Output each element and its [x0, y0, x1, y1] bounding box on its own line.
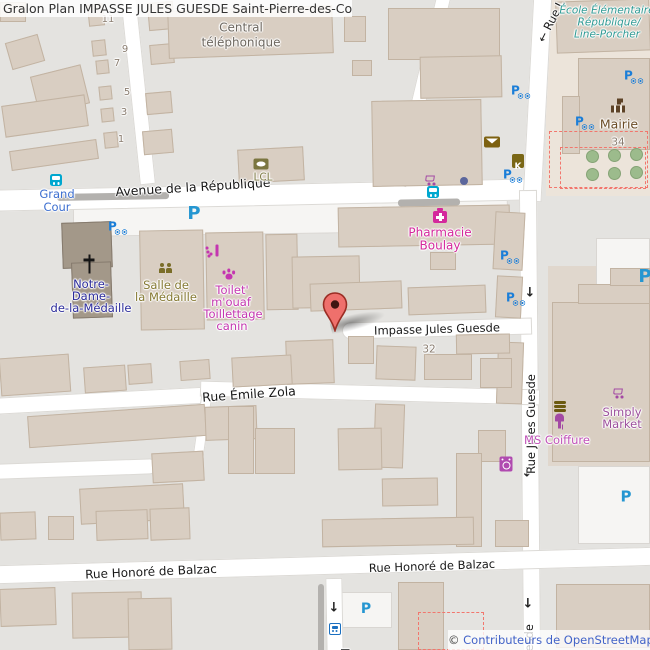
- parking-area: [578, 466, 650, 544]
- map-title-bar: Gralon Plan IMPASSE JULES GUESDE Saint-P…: [0, 0, 352, 17]
- tram-platform: [318, 584, 324, 650]
- osm-attribution-link[interactable]: Contributeurs de OpenStreetMap: [463, 633, 650, 647]
- building: [420, 55, 503, 98]
- poi-label: Pharmacie: [408, 227, 471, 240]
- tree: [586, 150, 599, 163]
- building: [578, 284, 650, 304]
- building: [0, 354, 71, 397]
- bicycle-parking-icon: [511, 85, 531, 102]
- church-cross-icon: [83, 255, 96, 274]
- tree: [630, 166, 643, 179]
- generic-poi-icon: [460, 177, 468, 185]
- building: [430, 252, 456, 270]
- poi-label: Central: [219, 22, 263, 35]
- building: [5, 34, 45, 70]
- building: [285, 339, 335, 385]
- building: [103, 131, 119, 148]
- street-label: Rue Honoré de Balzac: [369, 558, 496, 574]
- pharmacy-icon: [433, 211, 447, 223]
- building: [91, 39, 107, 56]
- post-box-icon: [484, 137, 500, 148]
- bicycle-parking-icon: [506, 292, 526, 309]
- oneway-arrow-icon: [525, 282, 536, 301]
- community-centre-icon: [159, 263, 173, 273]
- building: [338, 428, 383, 471]
- building: [151, 451, 204, 484]
- poi-label: Mairie: [600, 117, 638, 130]
- poi-label: République/: [578, 17, 641, 28]
- building: [127, 363, 152, 385]
- house-number: 3: [121, 108, 127, 119]
- road: [0, 458, 157, 480]
- building: [1, 94, 89, 137]
- attribution: © Contributeurs de OpenStreetMap: [448, 630, 650, 650]
- copyright-symbol: ©: [448, 633, 460, 647]
- building: [408, 285, 487, 316]
- building: [255, 428, 295, 474]
- poi-label: Market: [602, 418, 642, 430]
- dog-grooming-icon: [206, 245, 219, 258]
- bicycle-parking-icon: [500, 250, 520, 267]
- oneway-arrow-icon: [329, 597, 340, 616]
- parking-icon: [621, 490, 632, 505]
- bank-lcl-icon: [254, 159, 269, 170]
- tree: [586, 168, 599, 181]
- poi-label: téléphonique: [202, 37, 281, 50]
- building: [128, 598, 173, 650]
- poi-label: la Médaille: [135, 291, 197, 303]
- bicycle-parking-icon: [108, 221, 128, 238]
- building: [495, 520, 529, 547]
- building: [456, 334, 510, 355]
- building: [9, 139, 99, 171]
- tree: [608, 149, 621, 162]
- building: [424, 354, 472, 380]
- poi-label: Grand: [39, 188, 74, 200]
- house-number: 32: [422, 344, 435, 355]
- building: [83, 365, 127, 394]
- building: [98, 85, 112, 100]
- house-number: 1: [118, 135, 124, 146]
- building: [344, 16, 366, 42]
- house-number: 7: [114, 59, 120, 70]
- building: [149, 507, 190, 540]
- building: [95, 59, 109, 74]
- building: [352, 60, 372, 76]
- convenience-store-icon: [425, 175, 438, 186]
- bus-stop-icon: [427, 186, 439, 198]
- parking-icon: [638, 268, 650, 286]
- supermarket-icon: [613, 388, 626, 399]
- hairdresser-icon: [555, 414, 567, 429]
- building: [388, 8, 500, 60]
- laundry-icon: [500, 457, 513, 472]
- poi-label: Cour: [43, 201, 70, 213]
- building: [48, 516, 74, 540]
- building: [142, 129, 174, 156]
- tree: [630, 148, 643, 161]
- building: [0, 511, 36, 540]
- bank-icon: [512, 154, 524, 168]
- street-label: Rue Jules Guesde: [525, 374, 537, 474]
- building: [348, 336, 374, 364]
- bicycle-parking-icon: [575, 116, 595, 133]
- building: [95, 509, 148, 541]
- building: [228, 406, 254, 474]
- building: [480, 358, 512, 388]
- building: [179, 359, 210, 381]
- map-title: Gralon Plan IMPASSE JULES GUESDE Saint-P…: [3, 1, 352, 16]
- location-marker[interactable]: [322, 292, 348, 332]
- poi-label: de-la-Médaille: [51, 302, 132, 314]
- house-number: 9: [122, 45, 128, 56]
- parking-icon: [187, 205, 200, 223]
- map-canvas[interactable]: Avenue de la République← Rue LImpasse Ju…: [0, 0, 650, 650]
- house-number: 5: [124, 88, 130, 99]
- parking-icon: [361, 602, 371, 616]
- street-label: Impasse Jules Guesde: [374, 321, 500, 336]
- bicycle-parking-icon: [624, 70, 644, 87]
- building: [231, 354, 292, 387]
- building: [0, 587, 57, 627]
- fast-food-icon: [554, 401, 566, 413]
- building: [382, 478, 438, 507]
- tree: [608, 167, 621, 180]
- poi-label: École Élémentaire: [559, 5, 650, 16]
- poi-label: MS Coiffure: [524, 434, 590, 446]
- building: [375, 345, 416, 380]
- oneway-arrow-icon: [523, 593, 534, 612]
- building: [100, 107, 114, 122]
- poi-label: Line-Porcher: [574, 29, 640, 40]
- poi-label: canin: [216, 320, 247, 332]
- building: [145, 91, 173, 115]
- house-number: 34: [611, 137, 624, 148]
- poi-label: LCL: [253, 172, 272, 183]
- tram-stop-icon: [50, 174, 62, 186]
- town-hall-icon: [611, 100, 625, 113]
- poi-label: Boulay: [420, 240, 461, 253]
- tram-station-icon: [329, 623, 341, 635]
- building: [322, 517, 474, 548]
- paw-icon: [223, 269, 236, 280]
